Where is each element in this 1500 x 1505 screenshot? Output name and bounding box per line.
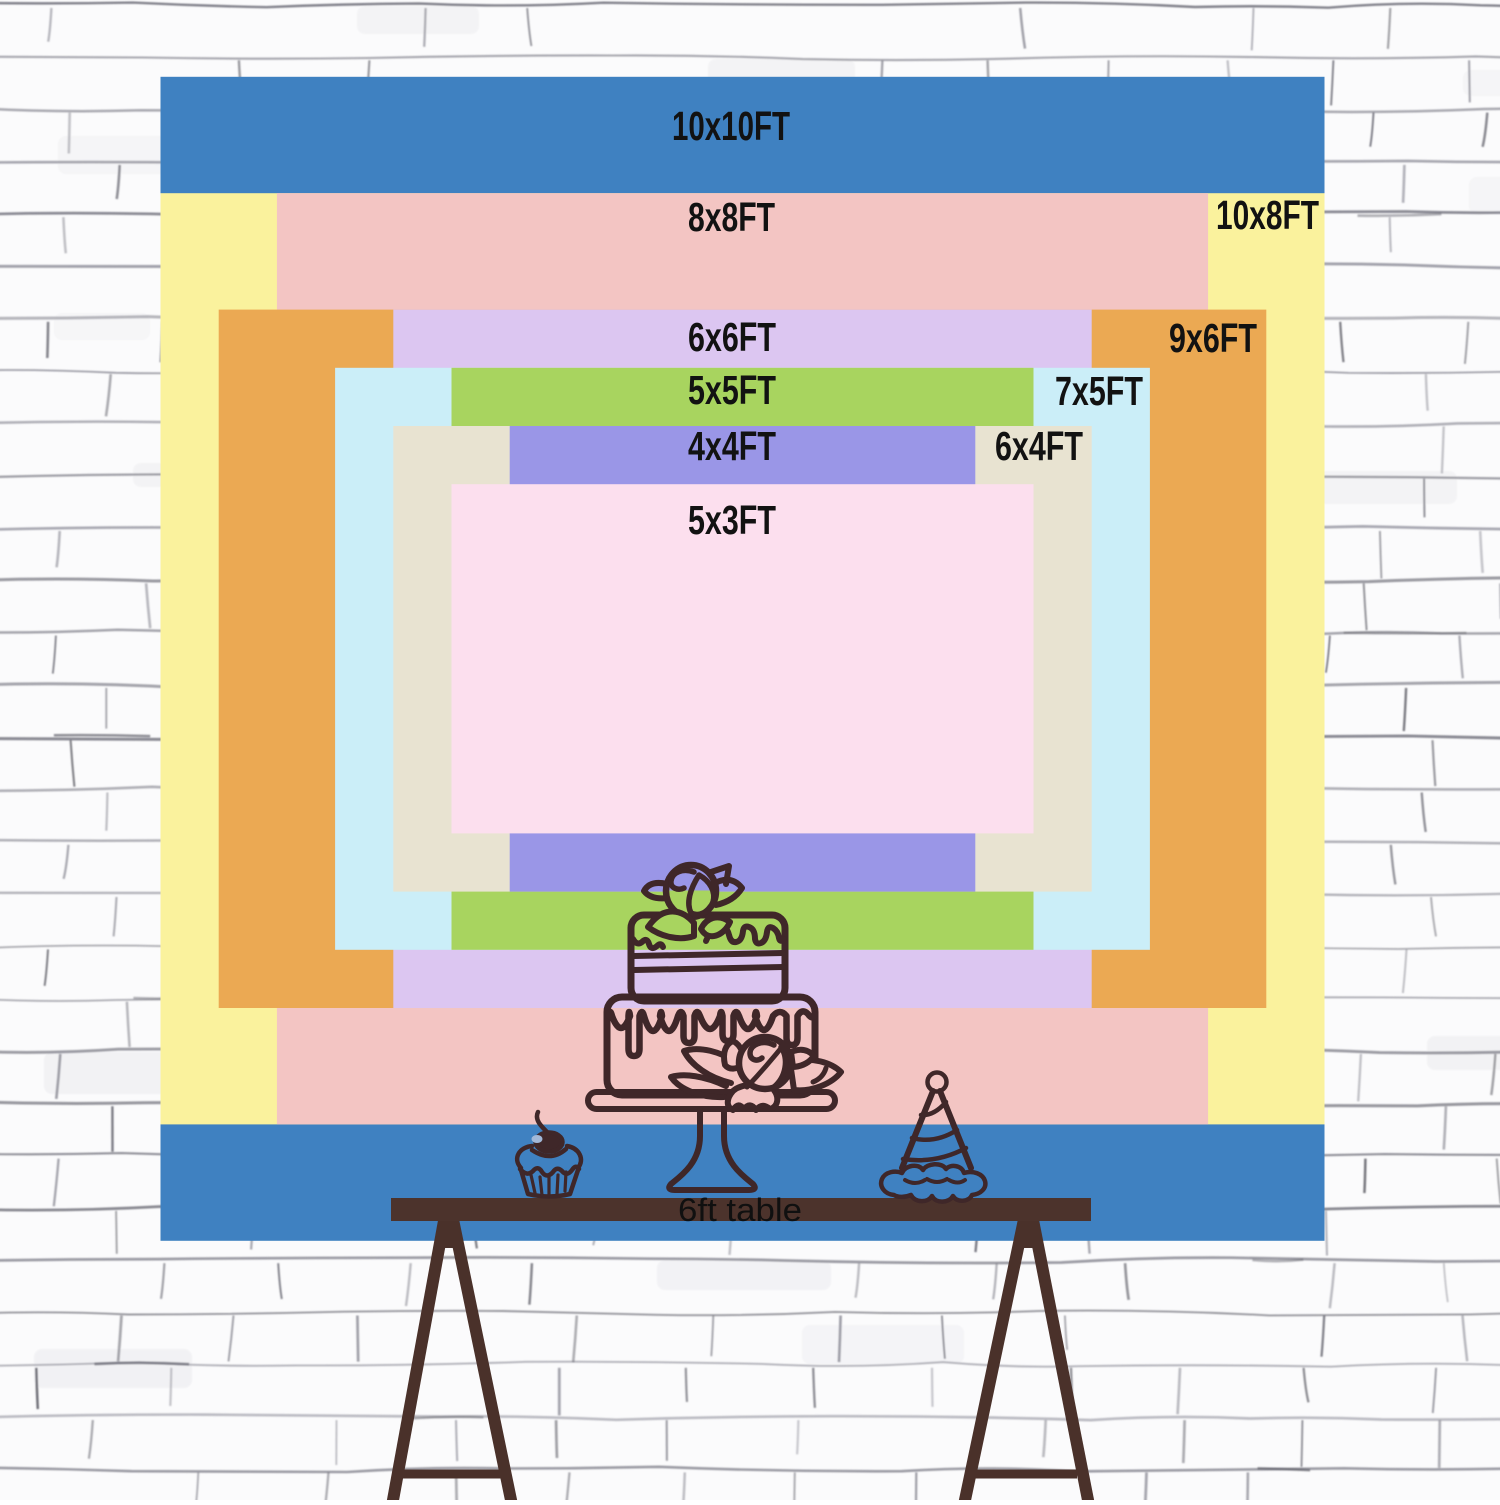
- svg-text:6x4FT: 6x4FT: [995, 423, 1083, 469]
- svg-text:10x8FT: 10x8FT: [1216, 192, 1319, 238]
- svg-text:6ft table: 6ft table: [678, 1192, 802, 1228]
- svg-text:5x5FT: 5x5FT: [688, 367, 776, 413]
- svg-text:5x3FT: 5x3FT: [688, 497, 776, 543]
- svg-text:7x5FT: 7x5FT: [1055, 368, 1143, 414]
- svg-text:8x8FT: 8x8FT: [688, 194, 775, 240]
- svg-text:4x4FT: 4x4FT: [688, 423, 776, 469]
- svg-text:10x10FT: 10x10FT: [672, 103, 790, 149]
- svg-text:9x6FT: 9x6FT: [1169, 315, 1257, 361]
- svg-text:6x6FT: 6x6FT: [688, 314, 776, 360]
